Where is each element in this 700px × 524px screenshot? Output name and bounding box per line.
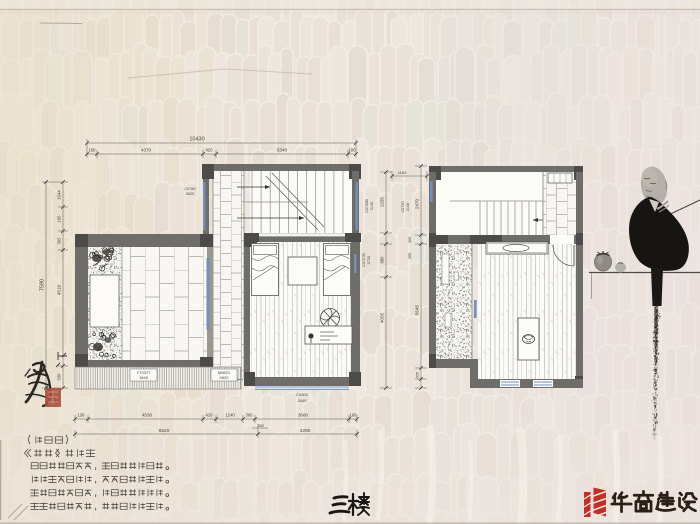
svg-text:6520: 6520 xyxy=(159,428,170,434)
svg-text:0720: 0720 xyxy=(367,256,371,264)
svg-text:C0720: C0720 xyxy=(401,201,405,212)
svg-text:138: 138 xyxy=(78,413,86,418)
svg-text:C0720B: C0720B xyxy=(365,199,369,213)
svg-text:265: 265 xyxy=(408,253,412,259)
svg-text:330: 330 xyxy=(57,373,62,381)
svg-text:195: 195 xyxy=(57,215,62,223)
svg-text:7590: 7590 xyxy=(40,279,46,291)
svg-text:4518: 4518 xyxy=(57,284,62,295)
svg-text:180: 180 xyxy=(89,148,97,153)
svg-text:0820: 0820 xyxy=(220,375,230,380)
svg-text:C0707B: C0707B xyxy=(362,253,366,267)
svg-text:4290: 4290 xyxy=(300,428,311,434)
svg-text:880: 880 xyxy=(380,256,385,264)
svg-text:10430: 10430 xyxy=(189,137,204,143)
svg-text:4370: 4370 xyxy=(141,148,152,153)
svg-text:360: 360 xyxy=(246,413,254,418)
svg-text:260: 260 xyxy=(258,424,264,428)
svg-text:420: 420 xyxy=(206,413,214,418)
svg-text:1544: 1544 xyxy=(57,190,62,200)
svg-text:1240: 1240 xyxy=(225,413,235,418)
svg-text:3680: 3680 xyxy=(298,413,309,418)
svg-text:4055: 4055 xyxy=(380,312,385,323)
svg-text:2140: 2140 xyxy=(370,202,374,210)
svg-text:C0760: C0760 xyxy=(184,187,195,191)
svg-text:335: 335 xyxy=(415,371,420,378)
svg-text:160: 160 xyxy=(350,413,358,418)
svg-text:5545: 5545 xyxy=(415,304,420,315)
svg-text:1840: 1840 xyxy=(139,375,149,380)
svg-text:2470: 2470 xyxy=(415,198,420,209)
svg-text:180: 180 xyxy=(349,148,357,153)
svg-text:4530: 4530 xyxy=(142,413,153,418)
svg-text:420: 420 xyxy=(206,148,214,153)
svg-text:300: 300 xyxy=(408,237,412,243)
svg-text:365: 365 xyxy=(57,237,62,245)
svg-text:1160: 1160 xyxy=(398,170,407,175)
svg-text:C0303: C0303 xyxy=(296,392,309,397)
svg-text:5340: 5340 xyxy=(277,148,288,153)
svg-text:0620: 0620 xyxy=(186,192,194,196)
svg-text:2255: 2255 xyxy=(380,197,385,207)
svg-text:3040: 3040 xyxy=(298,398,308,403)
svg-text:2140: 2140 xyxy=(406,203,410,211)
